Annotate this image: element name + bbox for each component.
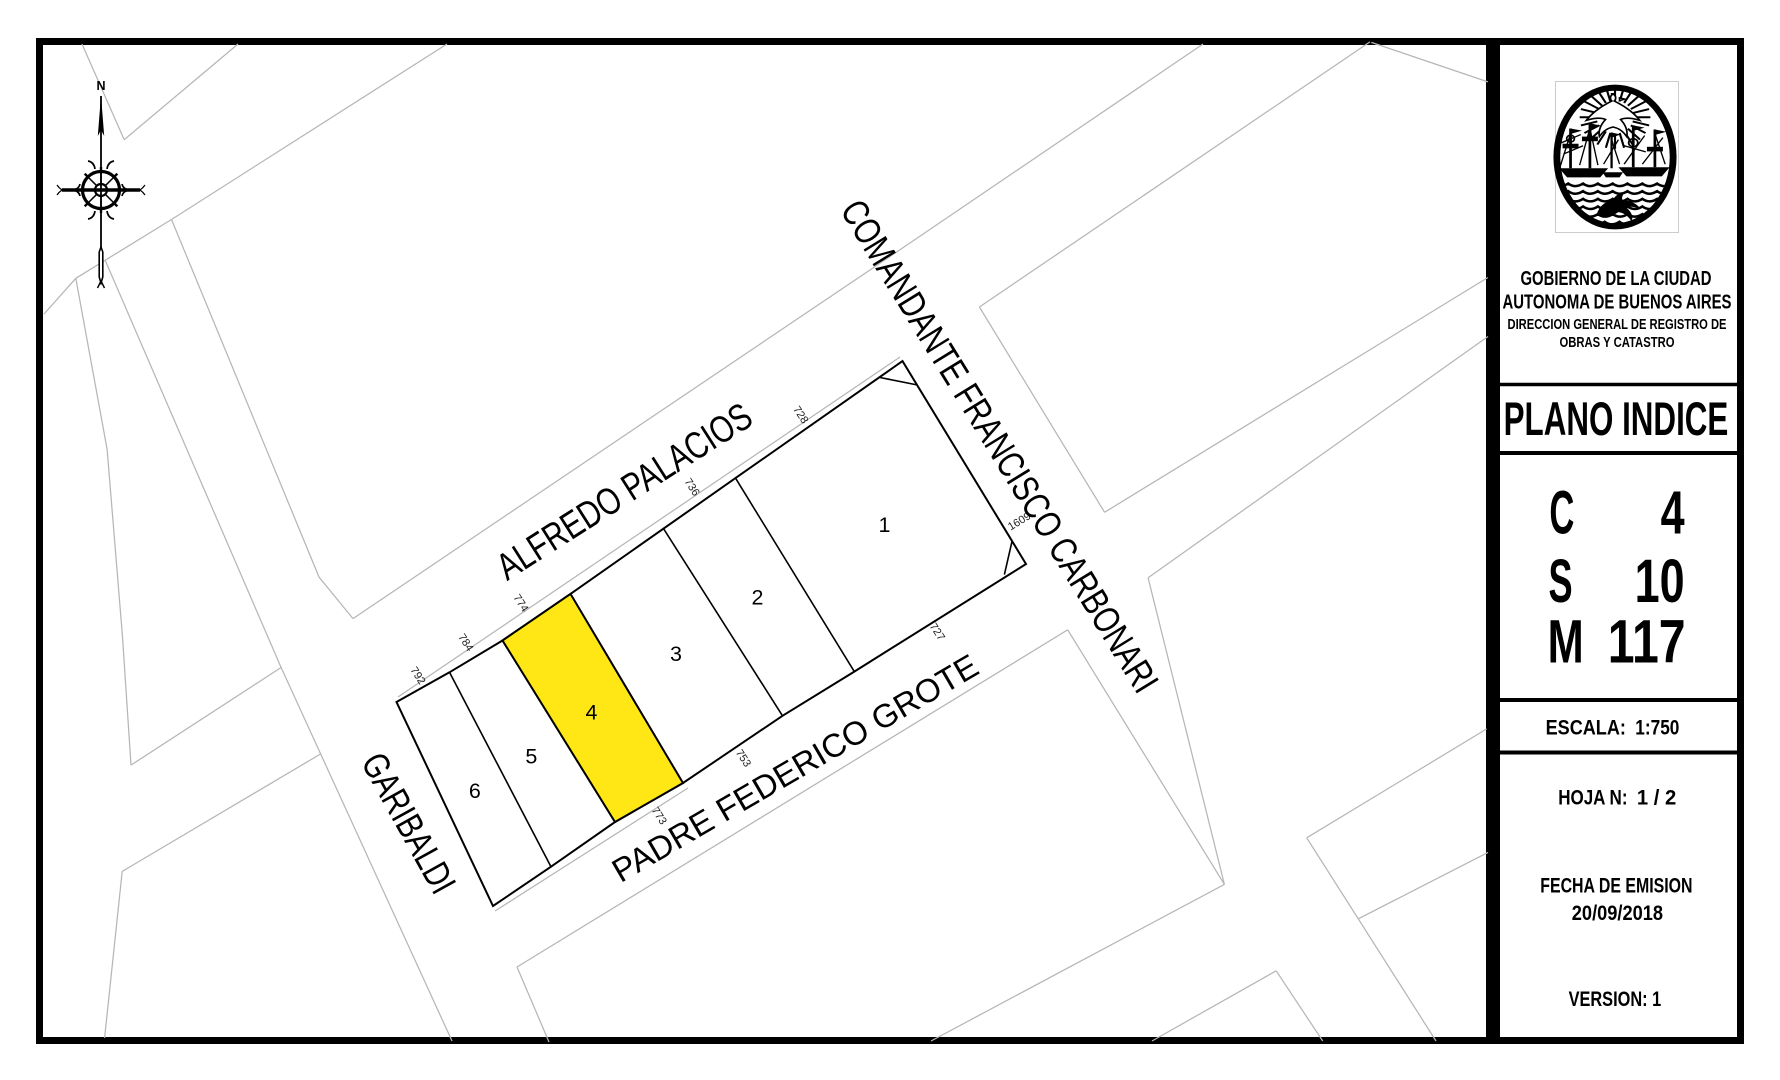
svg-text:20/09/2018: 20/09/2018 [1572, 902, 1663, 925]
svg-text:PLANO INDICE: PLANO INDICE [1504, 392, 1729, 445]
svg-text:HOJA N:: HOJA N: [1558, 787, 1627, 810]
svg-text:117: 117 [1608, 607, 1686, 675]
svg-text:5: 5 [525, 745, 537, 769]
svg-text:AUTONOMA DE BUENOS AIRES: AUTONOMA DE BUENOS AIRES [1503, 292, 1732, 314]
svg-text:FECHA DE EMISION: FECHA DE EMISION [1540, 875, 1692, 898]
svg-text:GOBIERNO DE LA CIUDAD: GOBIERNO DE LA CIUDAD [1521, 268, 1712, 290]
svg-text:ESCALA:: ESCALA: [1546, 717, 1626, 740]
svg-text:S: S [1549, 547, 1573, 615]
svg-text:1:750: 1:750 [1635, 717, 1679, 740]
svg-text:DIRECCION GENERAL DE REGISTRO: DIRECCION GENERAL DE REGISTRO DE [1508, 317, 1727, 333]
svg-text:OBRAS Y CATASTRO: OBRAS Y CATASTRO [1560, 335, 1675, 351]
svg-text:6: 6 [469, 779, 481, 803]
svg-text:4: 4 [1661, 479, 1685, 547]
svg-text:2: 2 [752, 586, 764, 610]
svg-text:VERSION: 1: VERSION: 1 [1569, 988, 1662, 1011]
svg-text:10: 10 [1635, 547, 1685, 615]
svg-text:N: N [96, 79, 105, 93]
svg-text:M: M [1548, 607, 1584, 675]
svg-text:1 / 2: 1 / 2 [1637, 787, 1676, 810]
svg-text:3: 3 [670, 642, 682, 666]
svg-text:4: 4 [586, 700, 598, 724]
svg-text:C: C [1549, 479, 1574, 547]
svg-text:1: 1 [879, 513, 891, 537]
